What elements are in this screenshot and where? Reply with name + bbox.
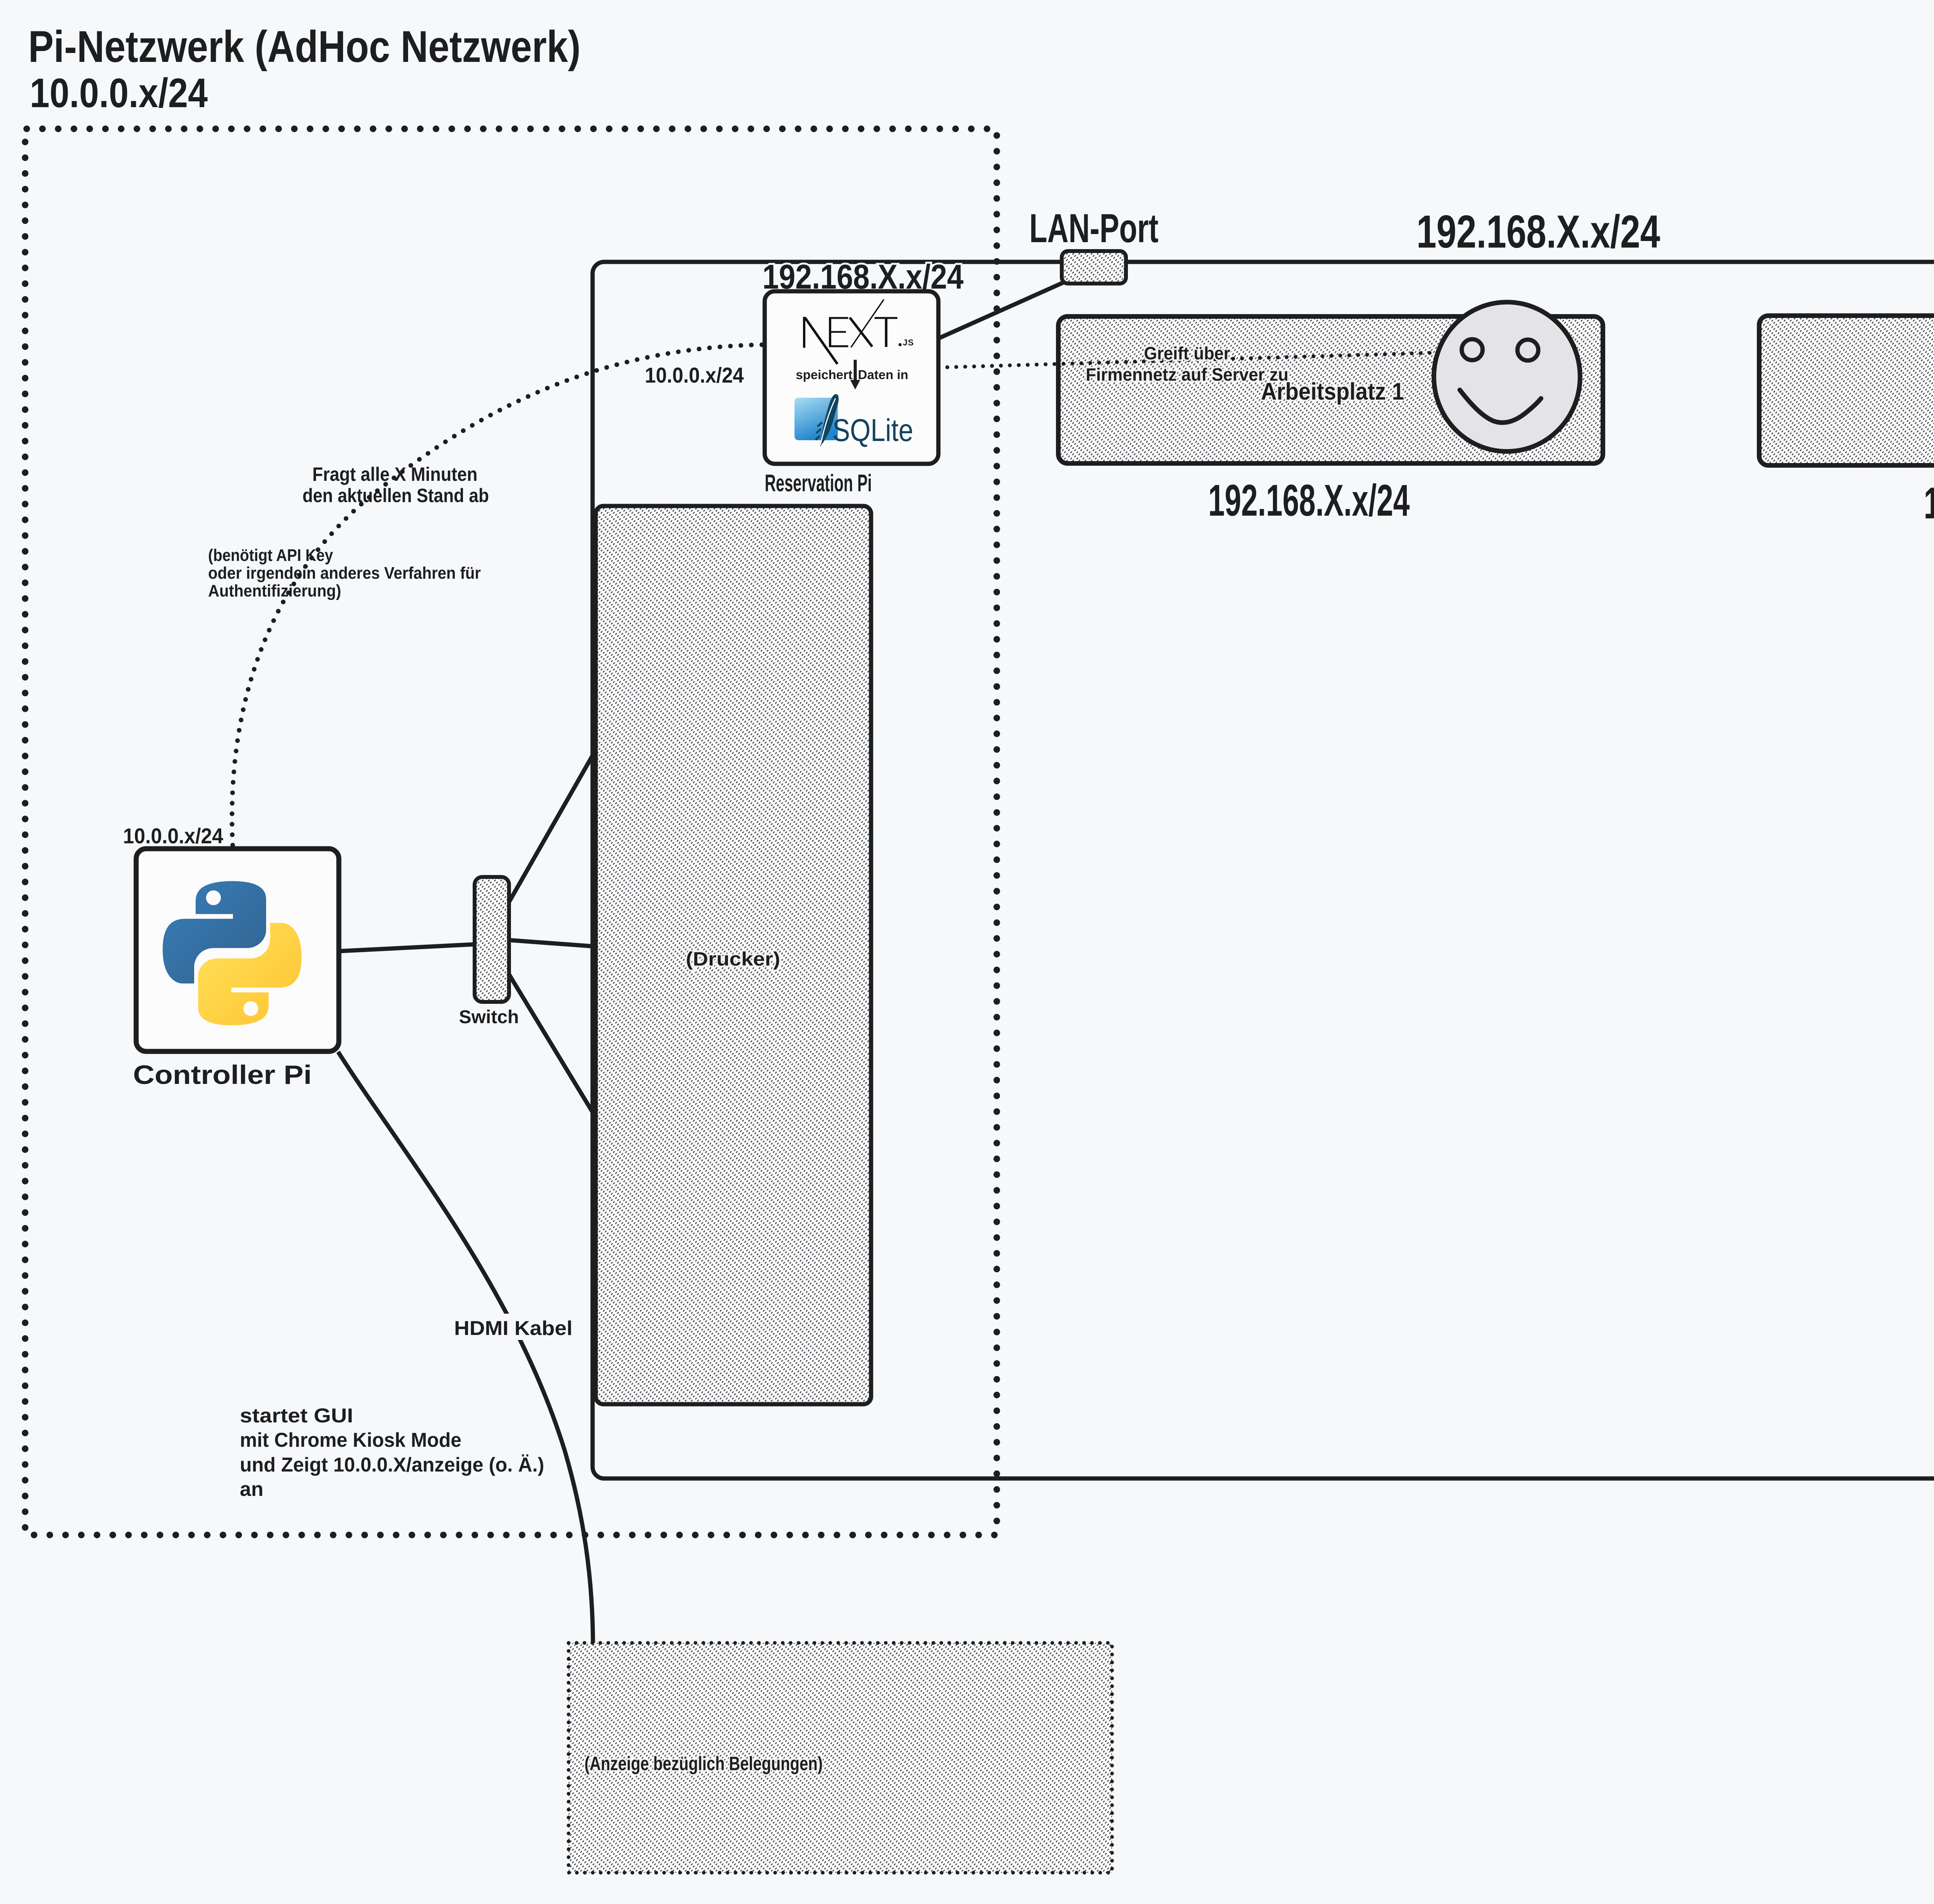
svg-text:an: an (240, 1478, 263, 1501)
svg-text:Arbeitsplatz 1: Arbeitsplatz 1 (1261, 378, 1404, 405)
svg-text:192.168.X.x/24: 192.168.X.x/24 (1208, 476, 1410, 525)
svg-text:10.0.0.x/24: 10.0.0.x/24 (123, 824, 223, 848)
svg-text:Greift über: Greift über (1144, 343, 1230, 363)
svg-text:192.168.X.x/24: 192.168.X.x/24 (1416, 206, 1660, 258)
svg-text:(Anzeige bezüglich Belegungen): (Anzeige bezüglich Belegungen) (584, 1753, 823, 1774)
svg-text:10.0.0.x/24: 10.0.0.x/24 (30, 70, 208, 116)
svg-text:Pi-Netzwerk (AdHoc Netzwerk): Pi-Netzwerk (AdHoc Netzwerk) (28, 22, 581, 72)
svg-text:JS: JS (903, 338, 914, 347)
svg-text:speichert: speichert (796, 367, 853, 382)
svg-text:mit Chrome Kiosk Mode: mit Chrome Kiosk Mode (240, 1429, 461, 1451)
svg-text:Daten in: Daten in (858, 367, 908, 382)
svg-text:Authentifizierung): Authentifizierung) (208, 581, 341, 600)
svg-text:192.168.X.x/24: 192.168.X.x/24 (1924, 479, 1934, 528)
svg-text:Firmennetz auf Server zu: Firmennetz auf Server zu (1086, 364, 1288, 385)
svg-text:(Drucker): (Drucker) (686, 948, 780, 970)
svg-text:HDMI Kabel: HDMI Kabel (454, 1317, 572, 1340)
svg-text:den aktuellen Stand ab: den aktuellen Stand ab (302, 485, 489, 506)
svg-text:Fragt alle X Minuten: Fragt alle X Minuten (313, 463, 478, 485)
svg-text:LAN-Port: LAN-Port (1029, 206, 1158, 251)
svg-text:und Zeigt 10.0.0.X/anzeige (o.: und Zeigt 10.0.0.X/anzeige (o. Ä.) (240, 1454, 544, 1476)
svg-text:Controller Pi: Controller Pi (133, 1060, 312, 1090)
svg-text:SQLite: SQLite (832, 413, 913, 448)
svg-text:Switch: Switch (459, 1007, 519, 1027)
svg-text:Reservation Pi: Reservation Pi (765, 470, 872, 497)
svg-text:10.0.0.x/24: 10.0.0.x/24 (645, 363, 744, 387)
svg-text:(benötigt API Key: (benötigt API Key (208, 546, 333, 565)
svg-text:startet GUI: startet GUI (240, 1405, 353, 1427)
svg-text:oder irgendein anderes Verfahr: oder irgendein anderes Verfahren für (208, 564, 481, 583)
